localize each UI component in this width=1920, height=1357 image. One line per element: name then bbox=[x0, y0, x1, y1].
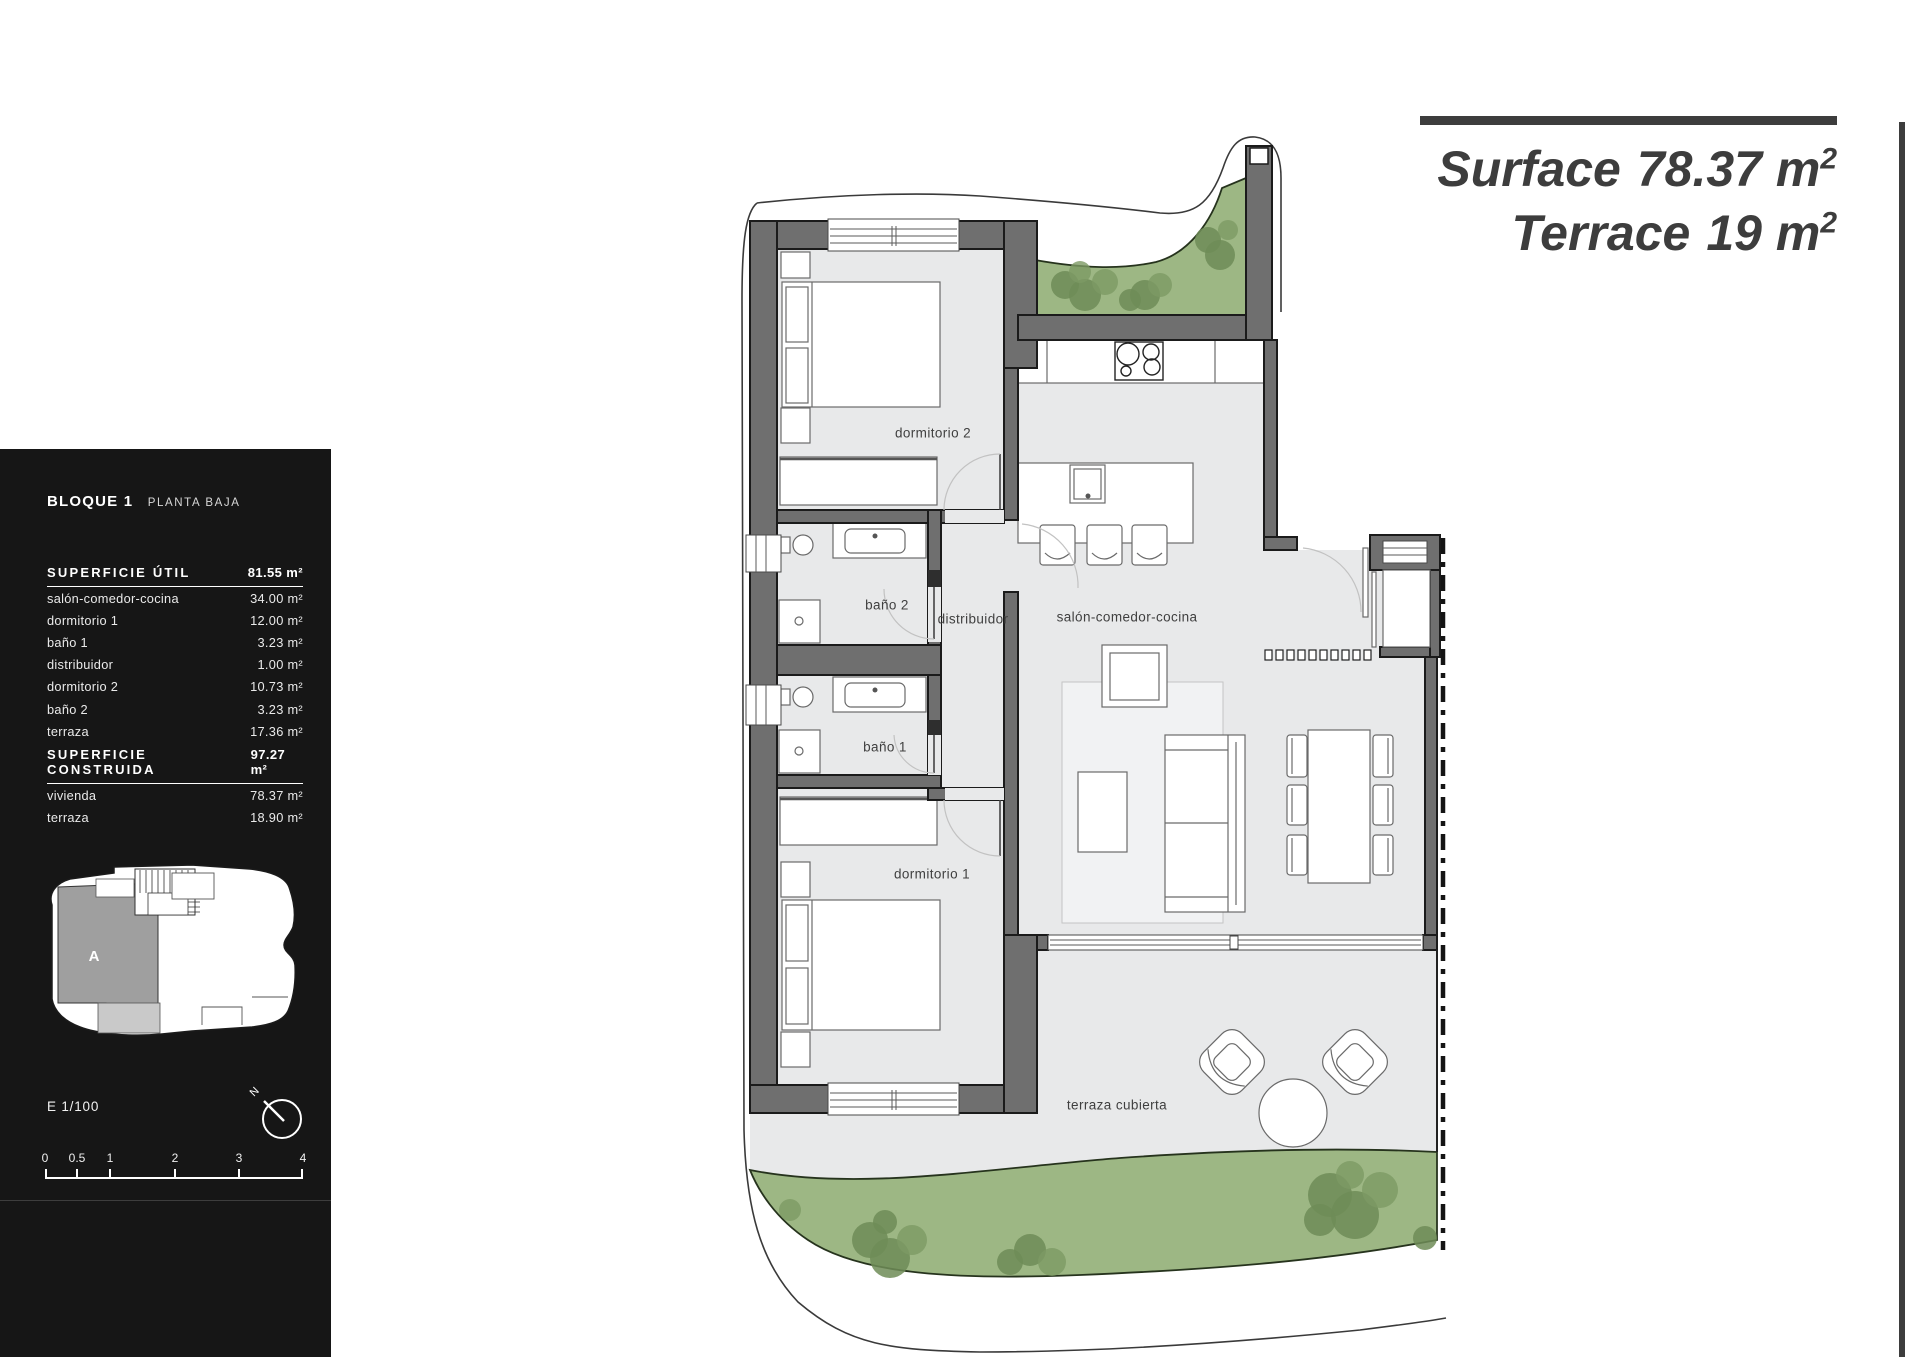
wardrobe-dormitorio-1 bbox=[780, 797, 937, 845]
room-label-bano-1: baño 1 bbox=[863, 740, 907, 755]
row-label: dormitorio 1 bbox=[47, 613, 118, 628]
row-label: salón-comedor-cocina bbox=[47, 591, 179, 606]
table-row: distribuidor 1.00 m² bbox=[47, 654, 303, 676]
kitchen-island bbox=[1018, 463, 1193, 565]
room-label-salon-comedor-cocina: salón-comedor-cocina bbox=[1057, 610, 1198, 625]
tick-label: 3 bbox=[236, 1151, 243, 1165]
info-sidebar: BLOQUE 1 PLANTA BAJA SUPERFICIE ÚTIL 81.… bbox=[0, 449, 331, 1357]
row-label: distribuidor bbox=[47, 657, 113, 672]
row-label: terraza bbox=[47, 724, 89, 739]
tick-label: 0 bbox=[42, 1151, 49, 1165]
constr-total: 97.27 m² bbox=[251, 747, 303, 777]
terrace-label: Terrace bbox=[1512, 205, 1691, 261]
window-bano-2 bbox=[746, 535, 781, 572]
row-value: 78.37 m² bbox=[250, 788, 303, 803]
row-label: vivienda bbox=[47, 788, 96, 803]
row-label: dormitorio 2 bbox=[47, 679, 118, 694]
block-name: BLOQUE 1 bbox=[47, 493, 133, 510]
superficie-construida-table: SUPERFICIE CONSTRUIDA 97.27 m² vivienda … bbox=[47, 747, 303, 828]
kitchen-counter bbox=[1018, 340, 1264, 383]
armchair bbox=[1102, 645, 1167, 707]
util-rows: salón-comedor-cocina 34.00 m² dormitorio… bbox=[47, 587, 303, 742]
table-row: vivienda 78.37 m² bbox=[47, 784, 303, 806]
scale-text: E 1/100 bbox=[47, 1099, 99, 1114]
right-edge-rule bbox=[1899, 122, 1905, 1357]
floor-name: PLANTA BAJA bbox=[148, 497, 241, 509]
coffee-table bbox=[1078, 772, 1127, 852]
window-dormitorio-1 bbox=[828, 1083, 959, 1115]
table-row: baño 2 3.23 m² bbox=[47, 698, 303, 720]
row-label: baño 1 bbox=[47, 635, 88, 650]
unit-terrace-block bbox=[98, 1003, 160, 1033]
row-value: 3.23 m² bbox=[258, 702, 303, 717]
terrace-table bbox=[1259, 1079, 1327, 1147]
room-label-dormitorio-2: dormitorio 2 bbox=[895, 426, 971, 441]
surface-label: Surface bbox=[1437, 141, 1620, 197]
entry-closet bbox=[1383, 570, 1430, 647]
key-plan-unit-label: A bbox=[89, 948, 100, 965]
row-value: 1.00 m² bbox=[258, 657, 303, 672]
floor-plan-drawing bbox=[560, 90, 1560, 1357]
scale-bar: 0 0.5 1 2 3 4 bbox=[45, 1151, 303, 1185]
tick-label: 0.5 bbox=[69, 1151, 86, 1165]
table-row: terraza 17.36 m² bbox=[47, 720, 303, 742]
sidebar-divider bbox=[0, 1200, 331, 1201]
table-row: dormitorio 2 10.73 m² bbox=[47, 676, 303, 698]
row-label: baño 2 bbox=[47, 702, 88, 717]
wall-notch bbox=[1250, 148, 1268, 164]
room-label-dormitorio-1: dormitorio 1 bbox=[894, 867, 970, 882]
surface-value: 78.37 m bbox=[1637, 141, 1820, 197]
terrace-line: Terrace19 m2 bbox=[1420, 201, 1837, 265]
constr-header: SUPERFICIE CONSTRUIDA bbox=[47, 747, 251, 777]
superficie-util-table: SUPERFICIE ÚTIL 81.55 m² salón-comedor-c… bbox=[47, 565, 303, 742]
title-block: Surface78.37 m2 Terrace19 m2 bbox=[1420, 116, 1837, 265]
north-label: N bbox=[248, 1085, 262, 1099]
tick-label: 2 bbox=[172, 1151, 179, 1165]
title-rule bbox=[1420, 116, 1837, 125]
tick-label: 4 bbox=[300, 1151, 307, 1165]
key-plan: A bbox=[42, 857, 304, 1052]
row-value: 34.00 m² bbox=[250, 591, 303, 606]
tick-label: 1 bbox=[107, 1151, 114, 1165]
sliding-door-terrace bbox=[1048, 935, 1423, 950]
table-row: salón-comedor-cocina 34.00 m² bbox=[47, 587, 303, 609]
row-value: 12.00 m² bbox=[250, 613, 303, 628]
row-value: 17.36 m² bbox=[250, 724, 303, 739]
constr-rows: vivienda 78.37 m² terraza 18.90 m² bbox=[47, 784, 303, 828]
surface-sup: 2 bbox=[1820, 142, 1837, 175]
block-title: BLOQUE 1 PLANTA BAJA bbox=[47, 493, 241, 511]
util-header: SUPERFICIE ÚTIL bbox=[47, 565, 191, 580]
dining-table bbox=[1308, 730, 1370, 883]
north-compass: N bbox=[240, 1077, 320, 1157]
util-total: 81.55 m² bbox=[248, 565, 303, 580]
table-row: baño 1 3.23 m² bbox=[47, 631, 303, 653]
window-bano-1 bbox=[746, 685, 781, 725]
table-row: terraza 18.90 m² bbox=[47, 806, 303, 828]
dining-set bbox=[1287, 730, 1393, 883]
window-dormitorio-2 bbox=[828, 219, 959, 251]
page: dormitorio 2baño 2distribuidorsalón-come… bbox=[0, 0, 1920, 1357]
row-label: terraza bbox=[47, 810, 89, 825]
table-row: dormitorio 1 12.00 m² bbox=[47, 609, 303, 631]
room-label-terraza-cubierta: terraza cubierta bbox=[1067, 1098, 1167, 1113]
row-value: 18.90 m² bbox=[250, 810, 303, 825]
porch-window bbox=[1383, 541, 1427, 563]
room-label-distribuidor: distribuidor bbox=[938, 612, 1009, 627]
row-value: 10.73 m² bbox=[250, 679, 303, 694]
surface-line: Surface78.37 m2 bbox=[1420, 137, 1837, 201]
terrace-value: 19 m bbox=[1706, 205, 1820, 261]
row-value: 3.23 m² bbox=[258, 635, 303, 650]
sofa bbox=[1165, 735, 1245, 912]
terrace-sup: 2 bbox=[1820, 206, 1837, 239]
floor-plan bbox=[560, 90, 1560, 1357]
room-label-bano-2: baño 2 bbox=[865, 598, 909, 613]
wardrobe-dormitorio-2 bbox=[780, 457, 937, 505]
